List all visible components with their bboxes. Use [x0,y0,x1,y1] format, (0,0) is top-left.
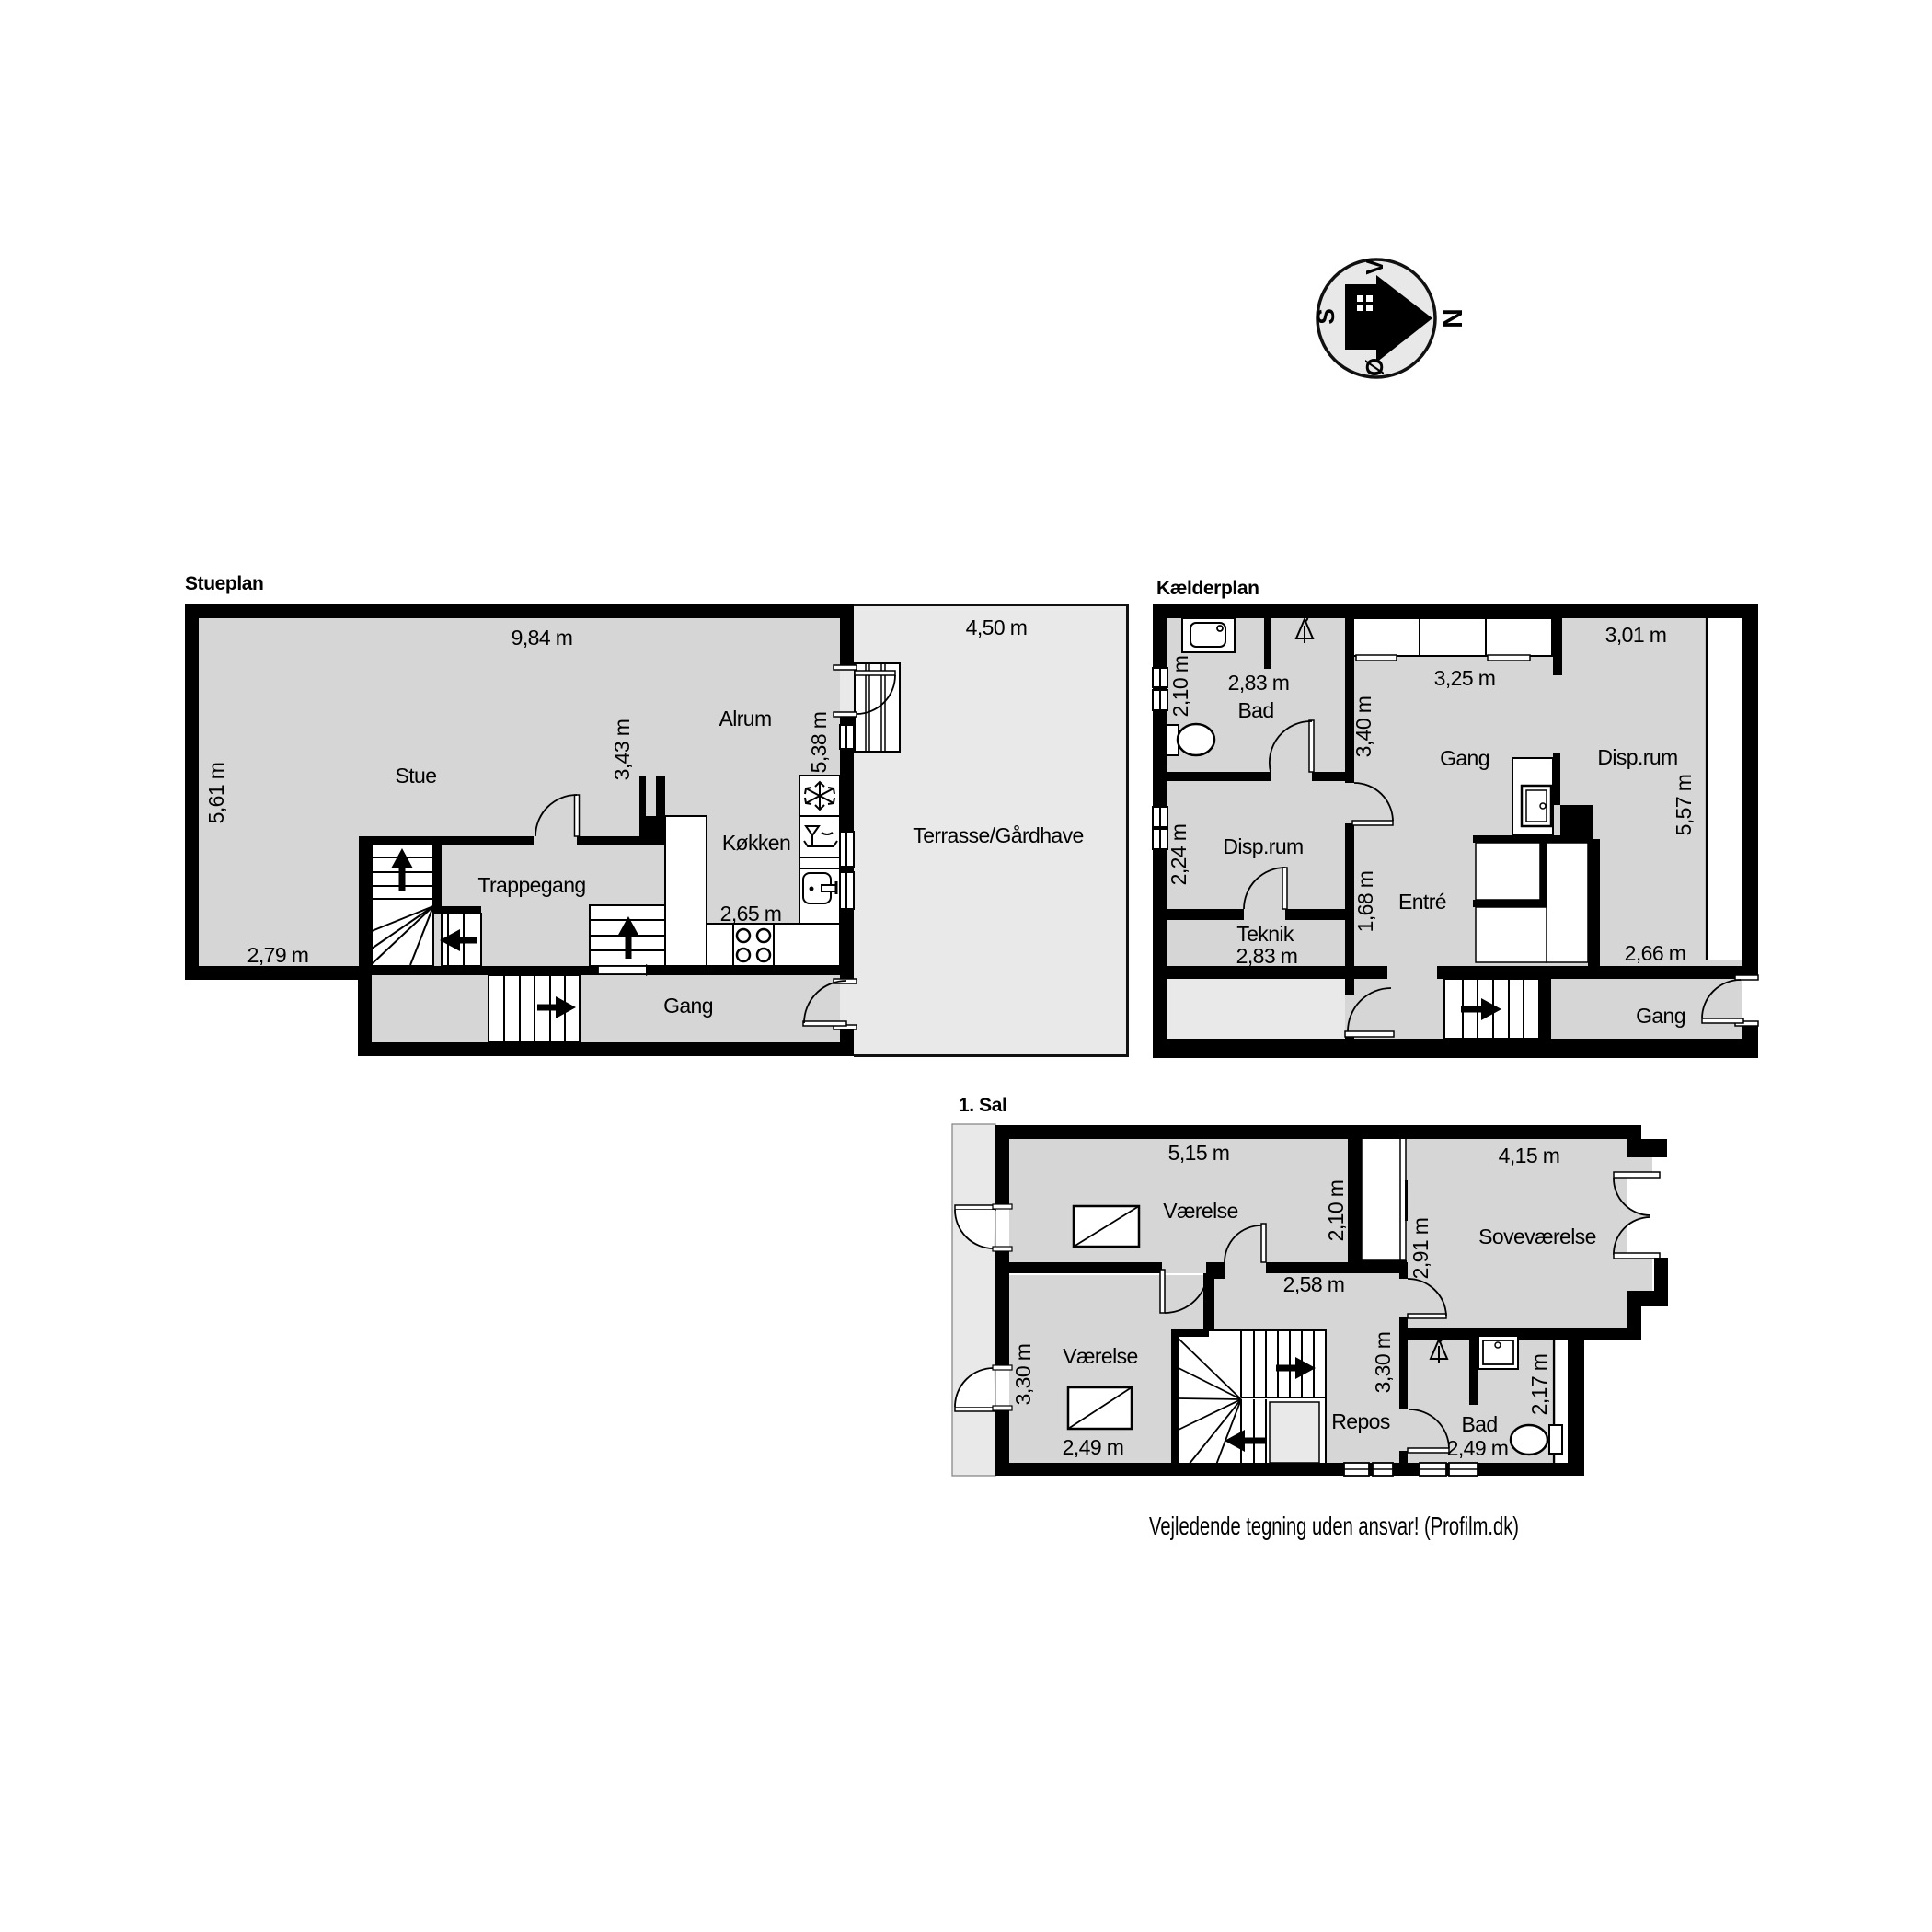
svg-text:2,83 m: 2,83 m [1228,671,1290,695]
svg-text:2,24 m: 2,24 m [1167,824,1190,886]
svg-text:3,25 m: 3,25 m [1434,666,1496,690]
svg-text:Værelse: Værelse [1163,1199,1237,1223]
svg-text:Teknik: Teknik [1236,922,1294,946]
svg-text:S: S [1312,308,1340,324]
svg-text:Vejledende tegning uden ansvar: Vejledende tegning uden ansvar! (Profilm… [1149,1512,1519,1541]
svg-text:4,50 m: 4,50 m [966,615,1028,639]
svg-text:3,30 m: 3,30 m [1371,1332,1395,1394]
svg-text:2,79 m: 2,79 m [247,943,309,967]
svg-text:3,43 m: 3,43 m [610,719,634,781]
svg-text:Kælderplan: Kælderplan [1156,578,1259,599]
svg-text:2,83 m: 2,83 m [1236,944,1298,968]
svg-text:Gang: Gang [663,994,713,1018]
svg-text:Repos: Repos [1331,1409,1390,1433]
svg-text:Disp.rum: Disp.rum [1223,834,1303,858]
svg-text:5,38 m: 5,38 m [807,712,831,774]
svg-text:1. Sal: 1. Sal [959,1095,1006,1116]
svg-text:Stueplan: Stueplan [185,573,263,594]
svg-text:N: N [1438,308,1468,328]
svg-text:Stue: Stue [396,764,437,788]
svg-text:2,49 m: 2,49 m [1063,1435,1124,1459]
svg-text:Ø: Ø [1361,358,1388,376]
svg-text:2,66 m: 2,66 m [1625,941,1686,965]
svg-text:3,30 m: 3,30 m [1011,1344,1035,1406]
svg-text:2,10 m: 2,10 m [1168,656,1192,718]
svg-text:5,15 m: 5,15 m [1168,1141,1230,1165]
svg-text:Trappegang: Trappegang [477,873,585,897]
svg-text:3,01 m: 3,01 m [1605,623,1667,647]
svg-text:Soveværelse: Soveværelse [1478,1225,1596,1248]
svg-text:Terrasse/Gårdhave: Terrasse/Gårdhave [913,823,1083,847]
svg-text:4,15 m: 4,15 m [1499,1144,1560,1167]
svg-text:Bad: Bad [1461,1412,1497,1436]
svg-text:Køkken: Køkken [722,831,790,855]
svg-text:Gang: Gang [1440,746,1489,770]
svg-text:2,49 m: 2,49 m [1447,1436,1509,1460]
svg-text:3,40 m: 3,40 m [1351,696,1375,758]
svg-text:2,10 m: 2,10 m [1324,1180,1348,1242]
svg-text:2,91 m: 2,91 m [1409,1218,1432,1280]
svg-text:Værelse: Værelse [1063,1344,1137,1368]
svg-text:V: V [1361,259,1388,275]
svg-text:Gang: Gang [1636,1004,1685,1028]
svg-text:Bad: Bad [1237,698,1273,722]
svg-text:9,84 m: 9,84 m [512,626,573,650]
svg-text:2,65 m: 2,65 m [720,902,782,926]
svg-text:Disp.rum: Disp.rum [1597,745,1677,769]
svg-text:2,17 m: 2,17 m [1527,1354,1551,1416]
svg-text:2,58 m: 2,58 m [1283,1272,1345,1296]
svg-text:Entré: Entré [1398,890,1446,914]
svg-text:5,57 m: 5,57 m [1672,775,1696,836]
svg-text:Alrum: Alrum [719,707,771,730]
svg-text:5,61 m: 5,61 m [204,763,228,824]
svg-text:1,68 m: 1,68 m [1353,871,1377,933]
